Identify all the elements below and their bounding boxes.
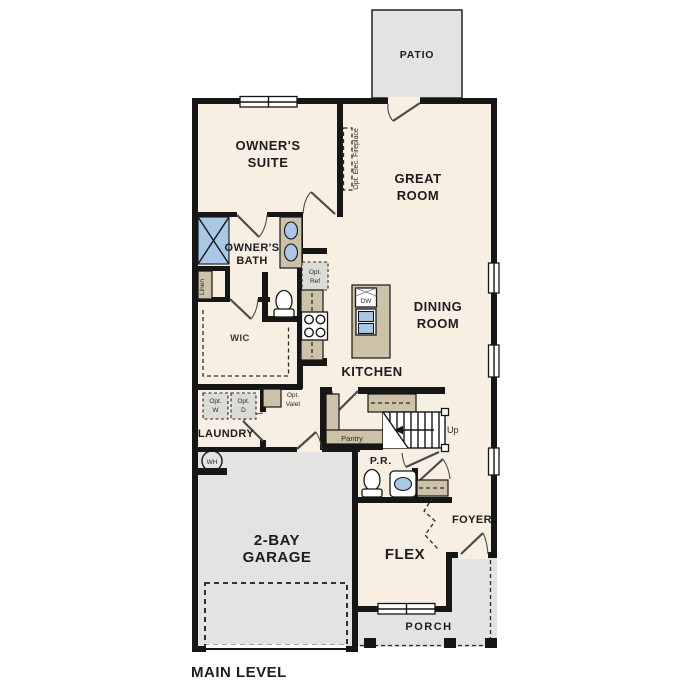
coat-closet-shelf [417,480,448,496]
flex-label: FLEX [385,546,425,563]
bath-vanity [280,217,302,268]
up-label: Up [447,425,459,435]
garage-label-1: 2-BAY [254,532,300,549]
foyer-window [489,448,500,475]
foyer-label: FOYER [452,514,492,526]
pr-sink [390,471,416,497]
porch-post [485,638,497,648]
wic-label: WIC [230,333,250,344]
staircase [383,409,449,452]
range [302,312,328,340]
plan-title: MAIN LEVEL [191,664,287,681]
porch-post [444,638,456,648]
valet-bench [263,389,281,407]
wh-label: WH [207,459,218,466]
porch-label: PORCH [405,621,452,633]
patio-label: PATIO [400,49,435,61]
opt-ref-label-2: Ref [310,278,320,285]
owners-bath-label-1: OWNER'S [225,242,280,254]
owners-suite-label-2: SUITE [248,155,289,170]
great-room-label-1: GREAT [394,171,441,186]
owners-bath-label-2: BATH [236,255,267,267]
pr-label: P.R. [370,455,392,467]
shower [198,217,229,264]
newel-post [442,445,449,452]
newel-post [442,409,449,416]
opt-valet-label-1: Opt. [287,392,299,399]
opt-valet-label-2: Valet [286,401,301,408]
dining-window-lower [489,345,500,377]
dw-label: DW [361,298,373,305]
garage-overhead-door [206,645,346,654]
owners-suite-label-1: OWNER'S [235,138,300,153]
bath-toilet [274,291,294,318]
island-sink [356,309,376,335]
flex-window [378,604,435,615]
opt-w-label-2: W [212,407,219,414]
kitchen-island [352,285,390,358]
owners-suite-window [240,97,297,108]
opt-ref-label-1: Opt. [309,269,321,276]
dining-room-label-1: DINING [414,299,463,314]
opt-d-label-1: Opt. [237,398,249,405]
washer-optional [203,393,228,419]
stair-closet [368,394,416,412]
pr-toilet [362,470,382,498]
floor-plan-page: PATIO OWNER'S SUITE GREAT ROOM OWNER'S B… [0,0,687,687]
opt-d-label-2: D [241,407,246,414]
floor-plan: PATIO OWNER'S SUITE GREAT ROOM OWNER'S B… [0,0,687,687]
refrigerator-optional [302,262,328,290]
great-room-label-2: ROOM [397,188,439,203]
dining-window-upper [489,263,500,293]
linen-label: Linen [199,279,206,295]
kitchen-label: KITCHEN [341,364,402,379]
porch-post [364,638,376,648]
pantry-label: Pantry [341,434,363,443]
garage-label-2: GARAGE [243,549,312,566]
laundry-label: LAUNDRY [198,428,254,440]
fireplace-label: Opt. Elec. Fireplace [353,128,360,190]
dining-room-label-2: ROOM [417,316,459,331]
dryer-optional [231,393,256,419]
opt-w-label-1: Opt. [209,398,221,405]
